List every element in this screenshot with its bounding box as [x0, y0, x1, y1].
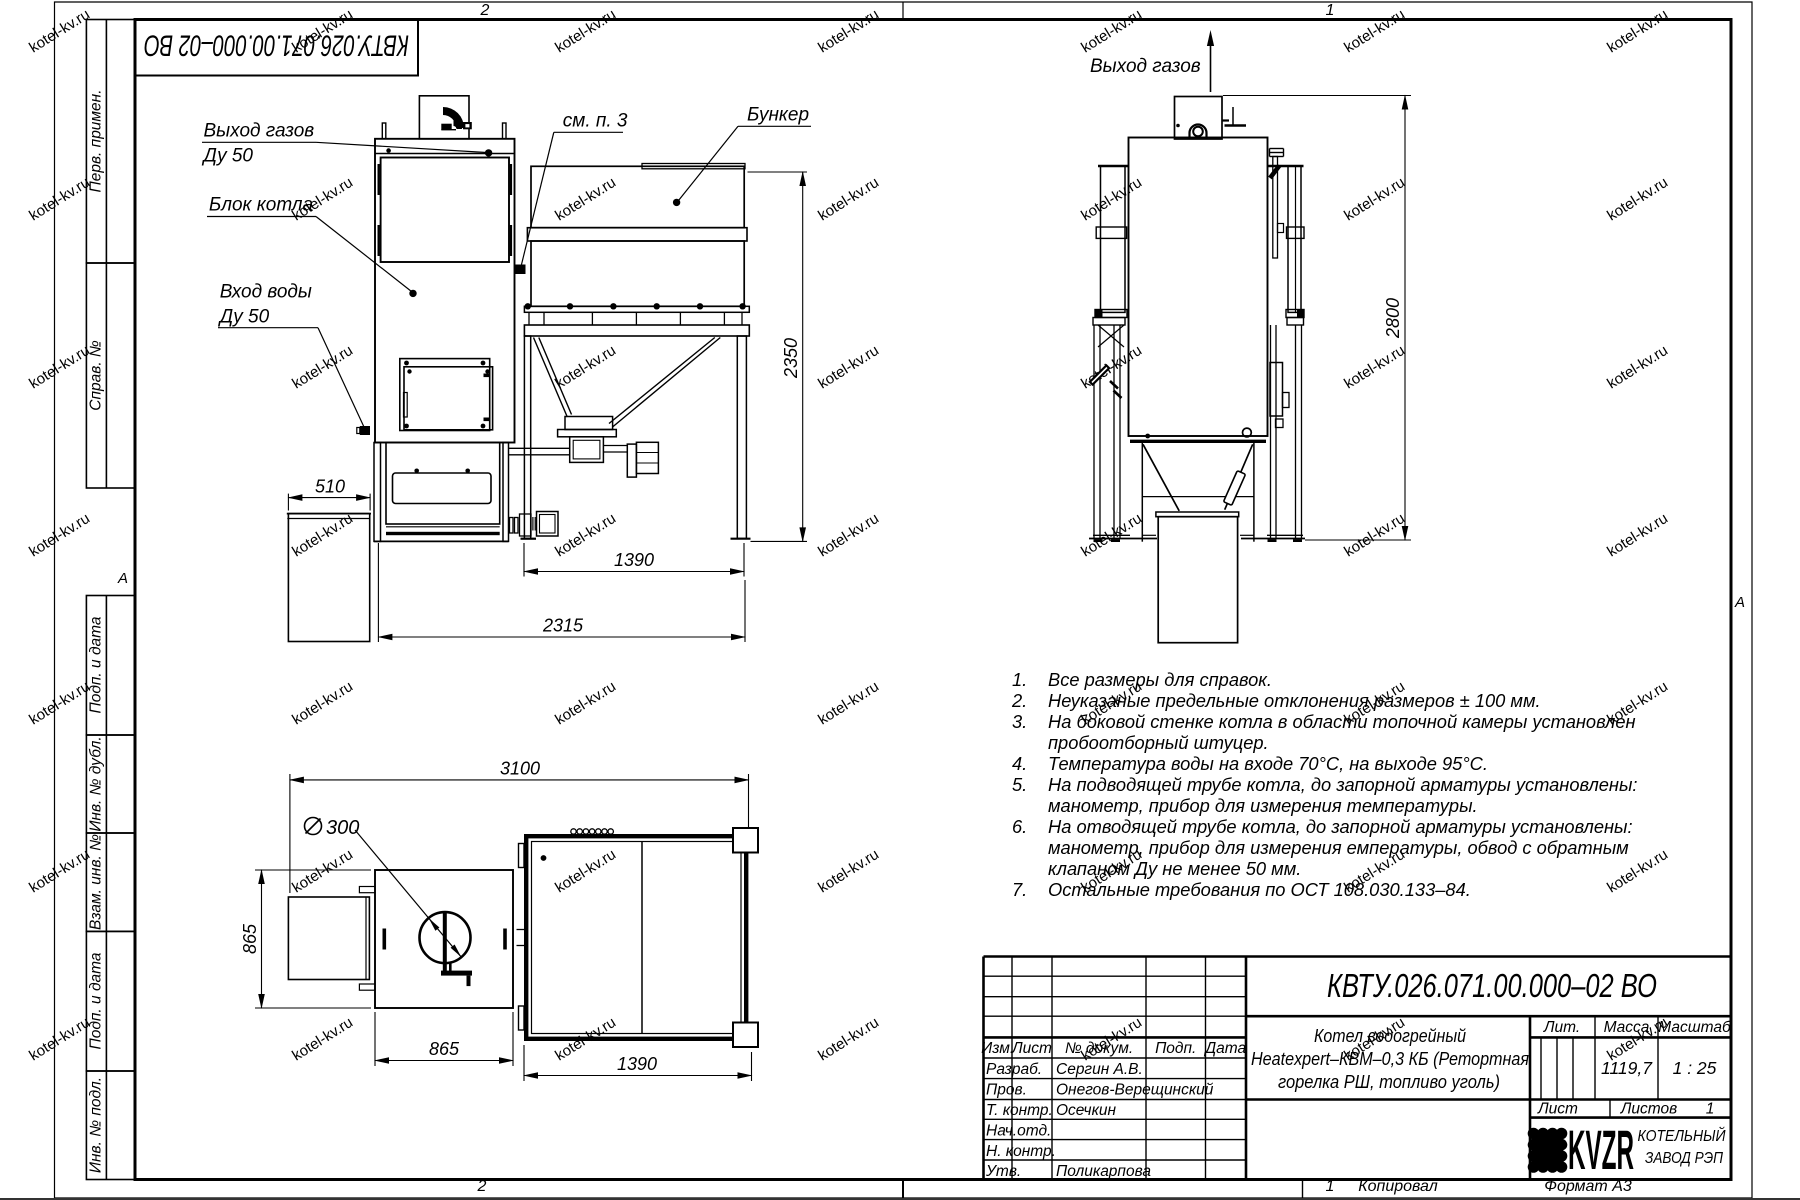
svg-text:865: 865: [240, 923, 260, 954]
svg-text:1: 1: [1326, 1178, 1335, 1195]
svg-text:Температура воды на входе 70°С: Температура воды на входе 70°С, на выход…: [1048, 753, 1488, 774]
svg-text:Пров.: Пров.: [986, 1082, 1027, 1099]
svg-text:300: 300: [326, 817, 359, 839]
svg-text:Н. контр.: Н. контр.: [986, 1143, 1056, 1160]
svg-text:Лист: Лист: [1011, 1040, 1052, 1057]
svg-text:3.: 3.: [1012, 711, 1027, 732]
svg-text:Все размеры для справок.: Все размеры для справок.: [1048, 669, 1272, 690]
svg-text:5.: 5.: [1012, 774, 1027, 795]
svg-text:Вход воды: Вход воды: [220, 282, 312, 303]
svg-text:КВТУ.026.071.00.000–02 ВО: КВТУ.026.071.00.000–02 ВО: [1327, 967, 1657, 1004]
svg-text:Выход газов: Выход газов: [204, 121, 315, 142]
svg-text:Копировал: Копировал: [1358, 1178, 1438, 1195]
svg-text:горелка РШ, топливо уголь): горелка РШ, топливо уголь): [1278, 1071, 1500, 1092]
svg-text:Инв. № дубл.: Инв. № дубл.: [88, 736, 105, 831]
svg-text:Т. контр.: Т. контр.: [986, 1102, 1053, 1119]
svg-text:Сергин А.В.: Сергин А.В.: [1056, 1061, 1143, 1078]
svg-text:Взам. инв. №: Взам. инв. №: [88, 834, 105, 930]
svg-text:Неуказаные предельные отклонен: Неуказаные предельные отклонения размеро…: [1048, 690, 1541, 711]
svg-text:Лист: Лист: [1537, 1101, 1578, 1118]
svg-text:Осечкин: Осечкин: [1056, 1102, 1117, 1119]
svg-text:1.: 1.: [1012, 669, 1027, 690]
svg-text:Остальные требования по ОСТ 10: Остальные требования по ОСТ 108.030.133–…: [1048, 879, 1471, 900]
svg-text:2.: 2.: [1011, 690, 1027, 711]
svg-text:На подводящей трубе котла, до: На подводящей трубе котла, до запорной а…: [1048, 774, 1638, 795]
svg-text:510: 510: [315, 477, 345, 497]
svg-text:1: 1: [1706, 1101, 1715, 1118]
svg-text:Heatexpert–КВМ–0,3 КБ (Ретортн: Heatexpert–КВМ–0,3 КБ (Ретортная: [1251, 1048, 1529, 1069]
svg-text:2: 2: [477, 1178, 487, 1195]
svg-text:На боковой стенке котла в обла: На боковой стенке котла в области топочн…: [1048, 711, 1636, 732]
svg-text:Онегов-Верещинский: Онегов-Верещинский: [1056, 1082, 1214, 1099]
svg-text:Выход газов: Выход газов: [1090, 56, 1201, 77]
svg-text:KVZR: KVZR: [1568, 1118, 1634, 1181]
svg-text:Бункер: Бункер: [747, 105, 809, 126]
svg-text:2800: 2800: [1383, 298, 1403, 339]
svg-text:Подп. и дата: Подп. и дата: [88, 616, 105, 713]
svg-text:№ докум.: № докум.: [1065, 1040, 1133, 1057]
svg-text:2350: 2350: [781, 338, 801, 379]
svg-text:4.: 4.: [1012, 753, 1027, 774]
svg-text:Подп.: Подп.: [1155, 1040, 1196, 1057]
svg-text:ЗАВОД РЭП: ЗАВОД РЭП: [1645, 1150, 1723, 1167]
svg-text:Инв. № подл.: Инв. № подл.: [88, 1077, 105, 1173]
svg-text:КВТУ.026.071.00.000–02 ВО: КВТУ.026.071.00.000–02 ВО: [144, 29, 409, 62]
svg-text:Нач.отд.: Нач.отд.: [986, 1123, 1051, 1140]
svg-text:3100: 3100: [500, 759, 540, 779]
svg-text:На отводящей трубе котла, до з: На отводящей трубе котла, до запорной ар…: [1048, 816, 1633, 837]
svg-text:пробоотборный штуцер.: пробоотборный штуцер.: [1048, 732, 1269, 753]
svg-text:1: 1: [1326, 2, 1335, 19]
svg-text:2: 2: [480, 2, 490, 19]
svg-text:А: А: [117, 570, 128, 587]
svg-text:Изм.: Изм.: [981, 1040, 1014, 1057]
svg-text:Котел водогрейный: Котел водогрейный: [1314, 1025, 1466, 1046]
svg-text:Листов: Листов: [1620, 1101, 1677, 1118]
svg-text:Ду 50: Ду 50: [218, 307, 270, 328]
svg-text:манометр, прибор для измерения: манометр, прибор для измерения температу…: [1048, 795, 1478, 816]
svg-text:2315: 2315: [542, 616, 584, 636]
svg-text:1390: 1390: [614, 550, 654, 570]
svg-text:манометр, прибор для измерения: манометр, прибор для измерения емператур…: [1048, 837, 1629, 858]
svg-text:Лит.: Лит.: [1543, 1019, 1580, 1036]
svg-text:865: 865: [429, 1039, 460, 1059]
svg-text:Дата: Дата: [1203, 1040, 1246, 1057]
svg-text:Перв. примен.: Перв. примен.: [88, 89, 105, 192]
svg-text:7.: 7.: [1012, 879, 1027, 900]
svg-text:1 : 25: 1 : 25: [1673, 1058, 1717, 1078]
svg-text:А: А: [1734, 594, 1745, 611]
svg-text:Подп. и дата: Подп. и дата: [88, 952, 105, 1049]
svg-text:Утв.: Утв.: [985, 1163, 1021, 1180]
svg-text:Разраб.: Разраб.: [986, 1061, 1042, 1078]
svg-text:см. п. 3: см. п. 3: [563, 111, 628, 132]
svg-text:Справ. №: Справ. №: [88, 340, 105, 411]
svg-text:1390: 1390: [617, 1054, 657, 1074]
svg-text:клапаном Ду не менее 50 мм.: клапаном Ду не менее 50 мм.: [1048, 858, 1301, 879]
svg-text:КОТЕЛЬНЫЙ: КОТЕЛЬНЫЙ: [1638, 1126, 1726, 1145]
svg-text:1119,7: 1119,7: [1601, 1058, 1653, 1078]
svg-text:Масса: Масса: [1604, 1019, 1650, 1036]
svg-text:Масштаб: Масштаб: [1658, 1019, 1732, 1036]
svg-text:Поликарпова: Поликарпова: [1056, 1163, 1151, 1180]
svg-text:Ду 50: Ду 50: [202, 146, 254, 167]
svg-text:Блок котла: Блок котла: [209, 195, 313, 216]
svg-text:6.: 6.: [1012, 816, 1027, 837]
